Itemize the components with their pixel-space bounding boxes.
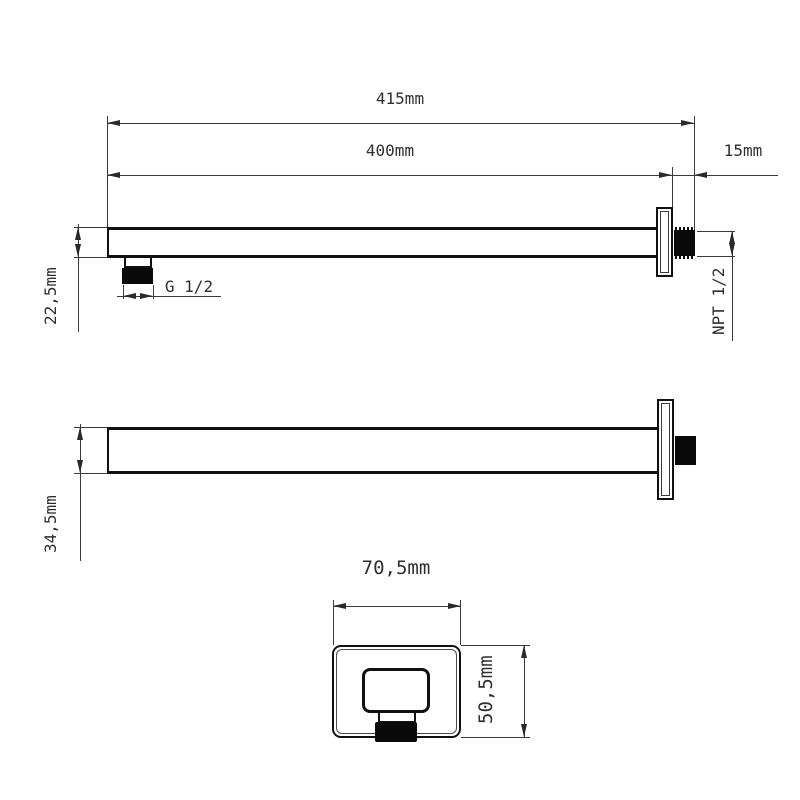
dim-flange-height-label: 50,5mm [469,648,503,732]
outlet-thread-nut [375,722,417,742]
technical-drawing-canvas: 415mm 400mm 15mm 22,5mm [0,0,800,800]
extension-line-plate-left [333,600,334,645]
extension-line-plate-right [460,600,461,645]
front-view: 70,5mm 50,5mm [0,0,800,800]
arrowhead-down [521,724,527,737]
arrowhead-left [333,603,346,609]
arrowhead-up [521,645,527,658]
dim-flange-width-label: 70,5mm [336,557,456,579]
extension-line-plate-top [461,645,530,646]
arm-cross-section [362,668,430,713]
extension-line-plate-bottom [461,737,530,738]
dim-flange-width-line [333,606,461,607]
